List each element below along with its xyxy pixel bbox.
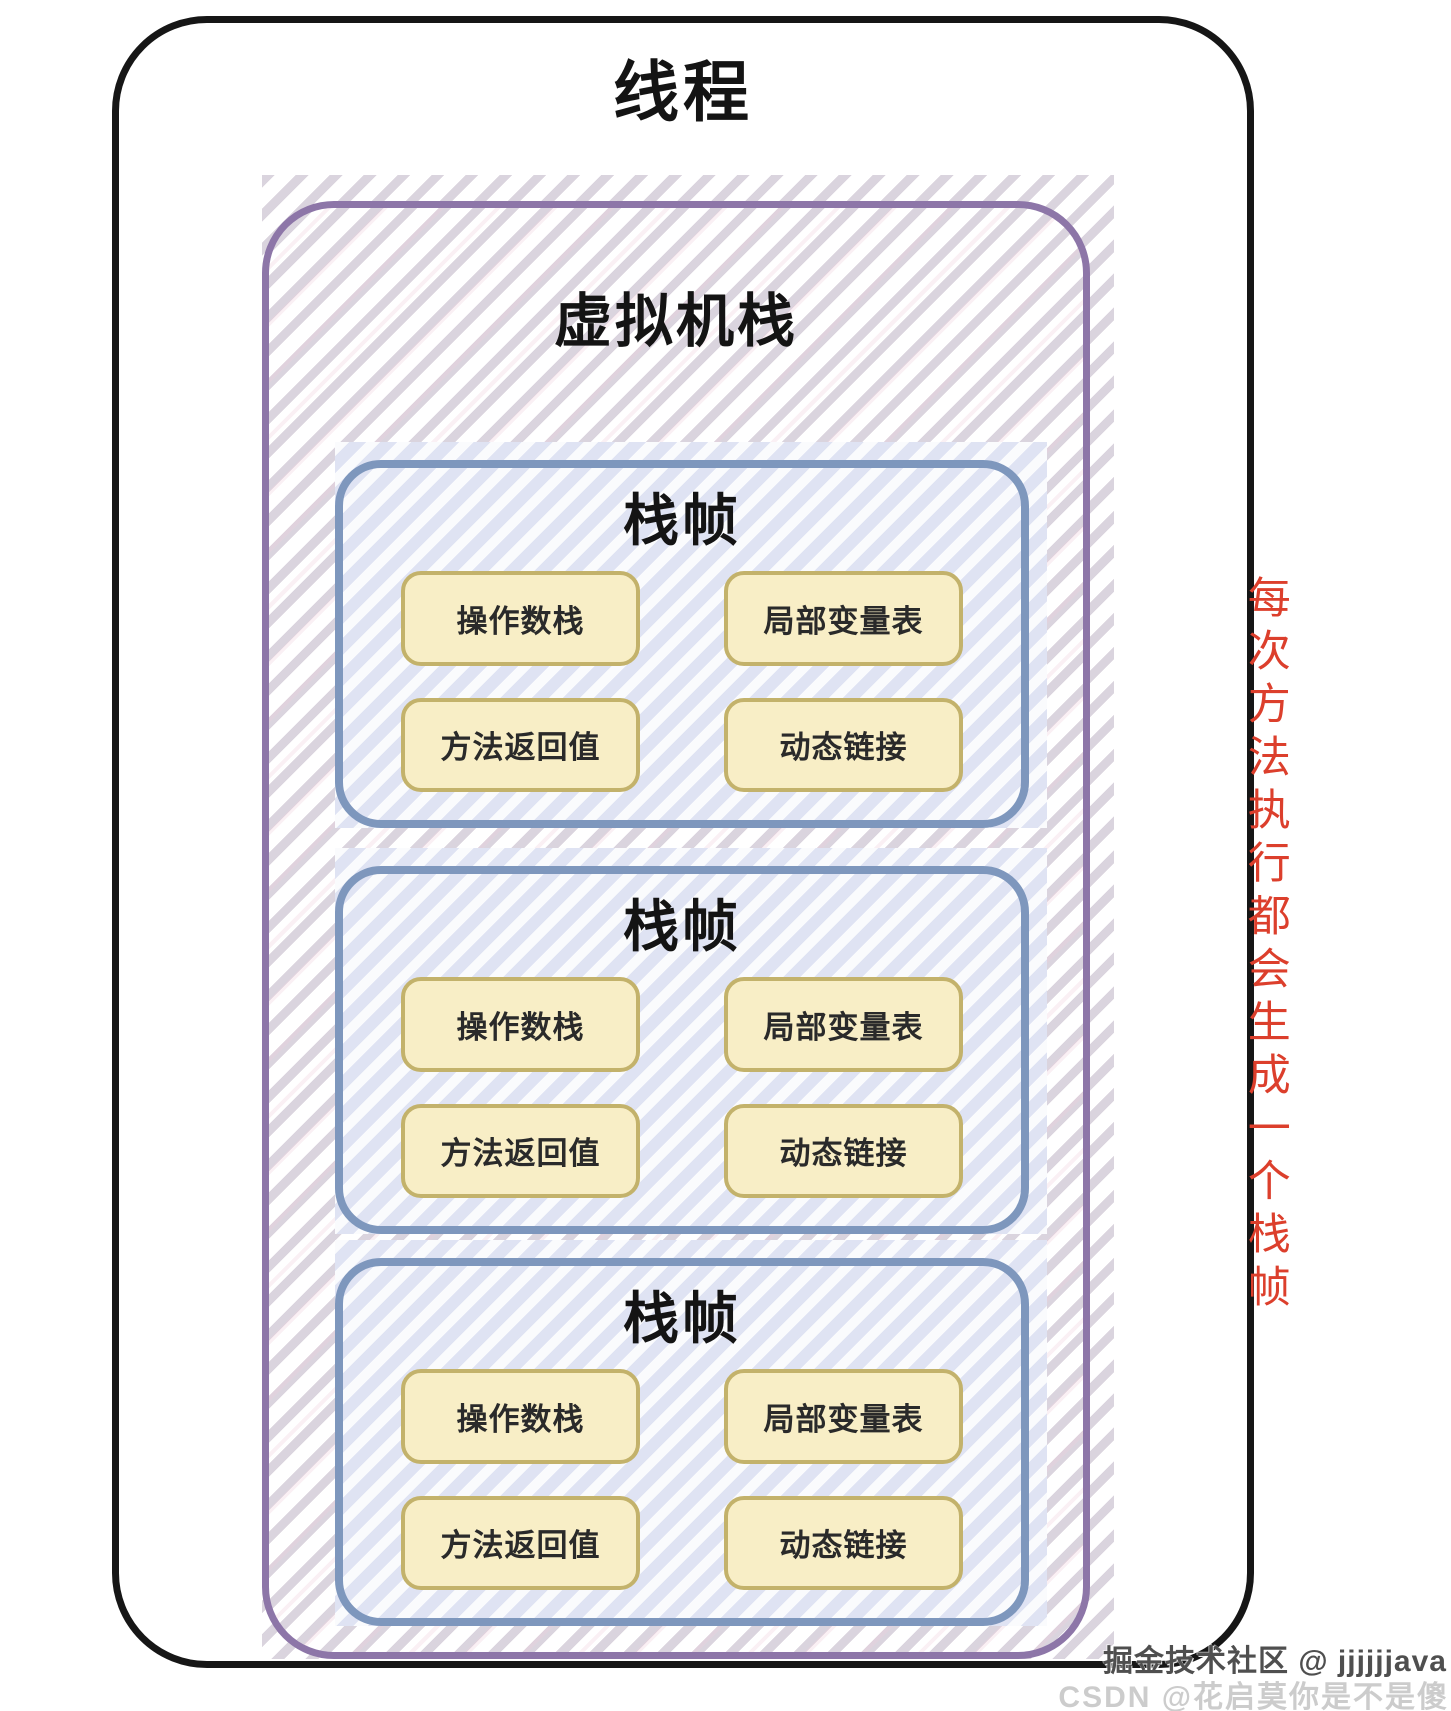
cell-local-variable-table: 局部变量表 — [724, 571, 963, 666]
cell-local-variable-table: 局部变量表 — [724, 1369, 963, 1464]
stack-frame-grid: 操作数栈 局部变量表 方法返回值 动态链接 — [343, 1355, 1021, 1618]
stack-frame-grid: 操作数栈 局部变量表 方法返回值 动态链接 — [343, 963, 1021, 1226]
cell-operand-stack: 操作数栈 — [401, 571, 640, 666]
cell-local-variable-table: 局部变量表 — [724, 977, 963, 1072]
cell-method-return-value: 方法返回值 — [401, 1104, 640, 1199]
stack-frame-title: 栈帧 — [343, 882, 1021, 963]
diagram-canvas: 线程 虚拟机栈 栈帧 操作数栈 局部变量表 方法返回值 动态链接 — [0, 0, 1451, 1711]
stack-frame-title: 栈帧 — [343, 476, 1021, 557]
side-note-annotation: 每次方法执行都会生成一个栈帧 — [1241, 575, 1288, 1365]
cell-dynamic-link: 动态链接 — [724, 698, 963, 793]
thread-title: 线程 — [119, 39, 1247, 135]
cell-dynamic-link: 动态链接 — [724, 1104, 963, 1199]
thread-container: 线程 虚拟机栈 栈帧 操作数栈 局部变量表 方法返回值 动态链接 — [112, 16, 1254, 1668]
watermark-csdn: CSDN @花启莫你是不是傻 — [1058, 1672, 1449, 1711]
vm-stack-container: 虚拟机栈 栈帧 操作数栈 局部变量表 方法返回值 动态链接 — [262, 201, 1090, 1659]
cell-operand-stack: 操作数栈 — [401, 1369, 640, 1464]
vm-stack-hatch-wrap: 虚拟机栈 栈帧 操作数栈 局部变量表 方法返回值 动态链接 — [262, 175, 1114, 1659]
stack-frame-grid: 操作数栈 局部变量表 方法返回值 动态链接 — [343, 557, 1021, 820]
stack-frame-box: 栈帧 操作数栈 局部变量表 方法返回值 动态链接 — [335, 866, 1029, 1234]
stack-frame-1: 栈帧 操作数栈 局部变量表 方法返回值 动态链接 — [335, 442, 1047, 828]
cell-method-return-value: 方法返回值 — [401, 698, 640, 793]
cell-method-return-value: 方法返回值 — [401, 1496, 640, 1591]
stack-frame-2: 栈帧 操作数栈 局部变量表 方法返回值 动态链接 — [335, 848, 1047, 1234]
stack-frame-box: 栈帧 操作数栈 局部变量表 方法返回值 动态链接 — [335, 460, 1029, 828]
stack-frame-title: 栈帧 — [343, 1274, 1021, 1355]
stack-frame-3: 栈帧 操作数栈 局部变量表 方法返回值 动态链接 — [335, 1240, 1047, 1626]
cell-operand-stack: 操作数栈 — [401, 977, 640, 1072]
cell-dynamic-link: 动态链接 — [724, 1496, 963, 1591]
vm-stack-title: 虚拟机栈 — [269, 274, 1083, 358]
stack-frame-box: 栈帧 操作数栈 局部变量表 方法返回值 动态链接 — [335, 1258, 1029, 1626]
